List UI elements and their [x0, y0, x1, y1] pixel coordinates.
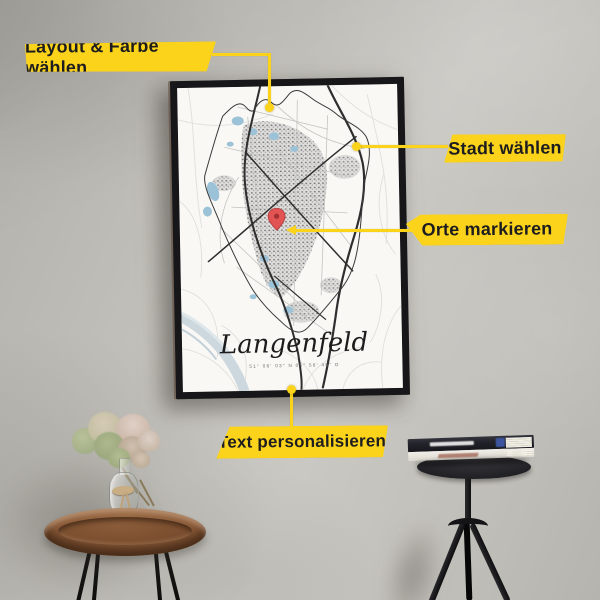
stool-post — [465, 474, 471, 524]
callout-label: Orte markieren — [421, 218, 552, 240]
hydrangea-bloom — [138, 430, 160, 452]
book-pages — [506, 436, 532, 447]
callout-label: Text personalisieren — [218, 431, 386, 452]
stool-leg-bend — [448, 518, 488, 534]
side-table-tray — [58, 517, 192, 545]
scene: Langenfeld 51° 06' 03" N 06° 56' 45" O — [0, 0, 600, 600]
connector-dot — [265, 103, 274, 112]
connector-dot — [287, 385, 296, 394]
connector-arrowhead — [286, 225, 296, 235]
callout-layout-farbe[interactable]: Layout & Farbe wählen — [25, 41, 218, 72]
hydrangea-bloom — [132, 452, 150, 468]
connector-dot — [352, 142, 361, 151]
book-stack — [408, 435, 535, 461]
connector-line — [358, 145, 448, 148]
book-spine-text-smudge — [438, 452, 479, 457]
callout-text-personalisieren[interactable]: Text personalisieren — [216, 425, 388, 458]
poster-frame: Langenfeld 51° 06' 03" N 06° 56' 45" O — [170, 77, 410, 399]
poster-paper: Langenfeld 51° 06' 03" N 06° 56' 45" O — [177, 84, 403, 392]
book-pages — [506, 449, 532, 456]
connector-line — [212, 53, 270, 56]
connector-line — [295, 229, 415, 232]
city-map: Langenfeld 51° 06' 03" N 06° 56' 45" O — [177, 84, 403, 392]
side-table-top — [44, 508, 206, 556]
callout-label: Stadt wählen — [448, 137, 562, 159]
book-spine-label — [496, 438, 505, 447]
connector-line — [268, 53, 271, 106]
map-title: Langenfeld — [219, 328, 369, 361]
connector-line — [290, 390, 293, 428]
callout-orte-markieren[interactable]: Orte markieren — [406, 213, 568, 245]
book-spine-text-smudge — [430, 441, 474, 447]
callout-stadt-waehlen[interactable]: Stadt wählen — [444, 133, 566, 162]
